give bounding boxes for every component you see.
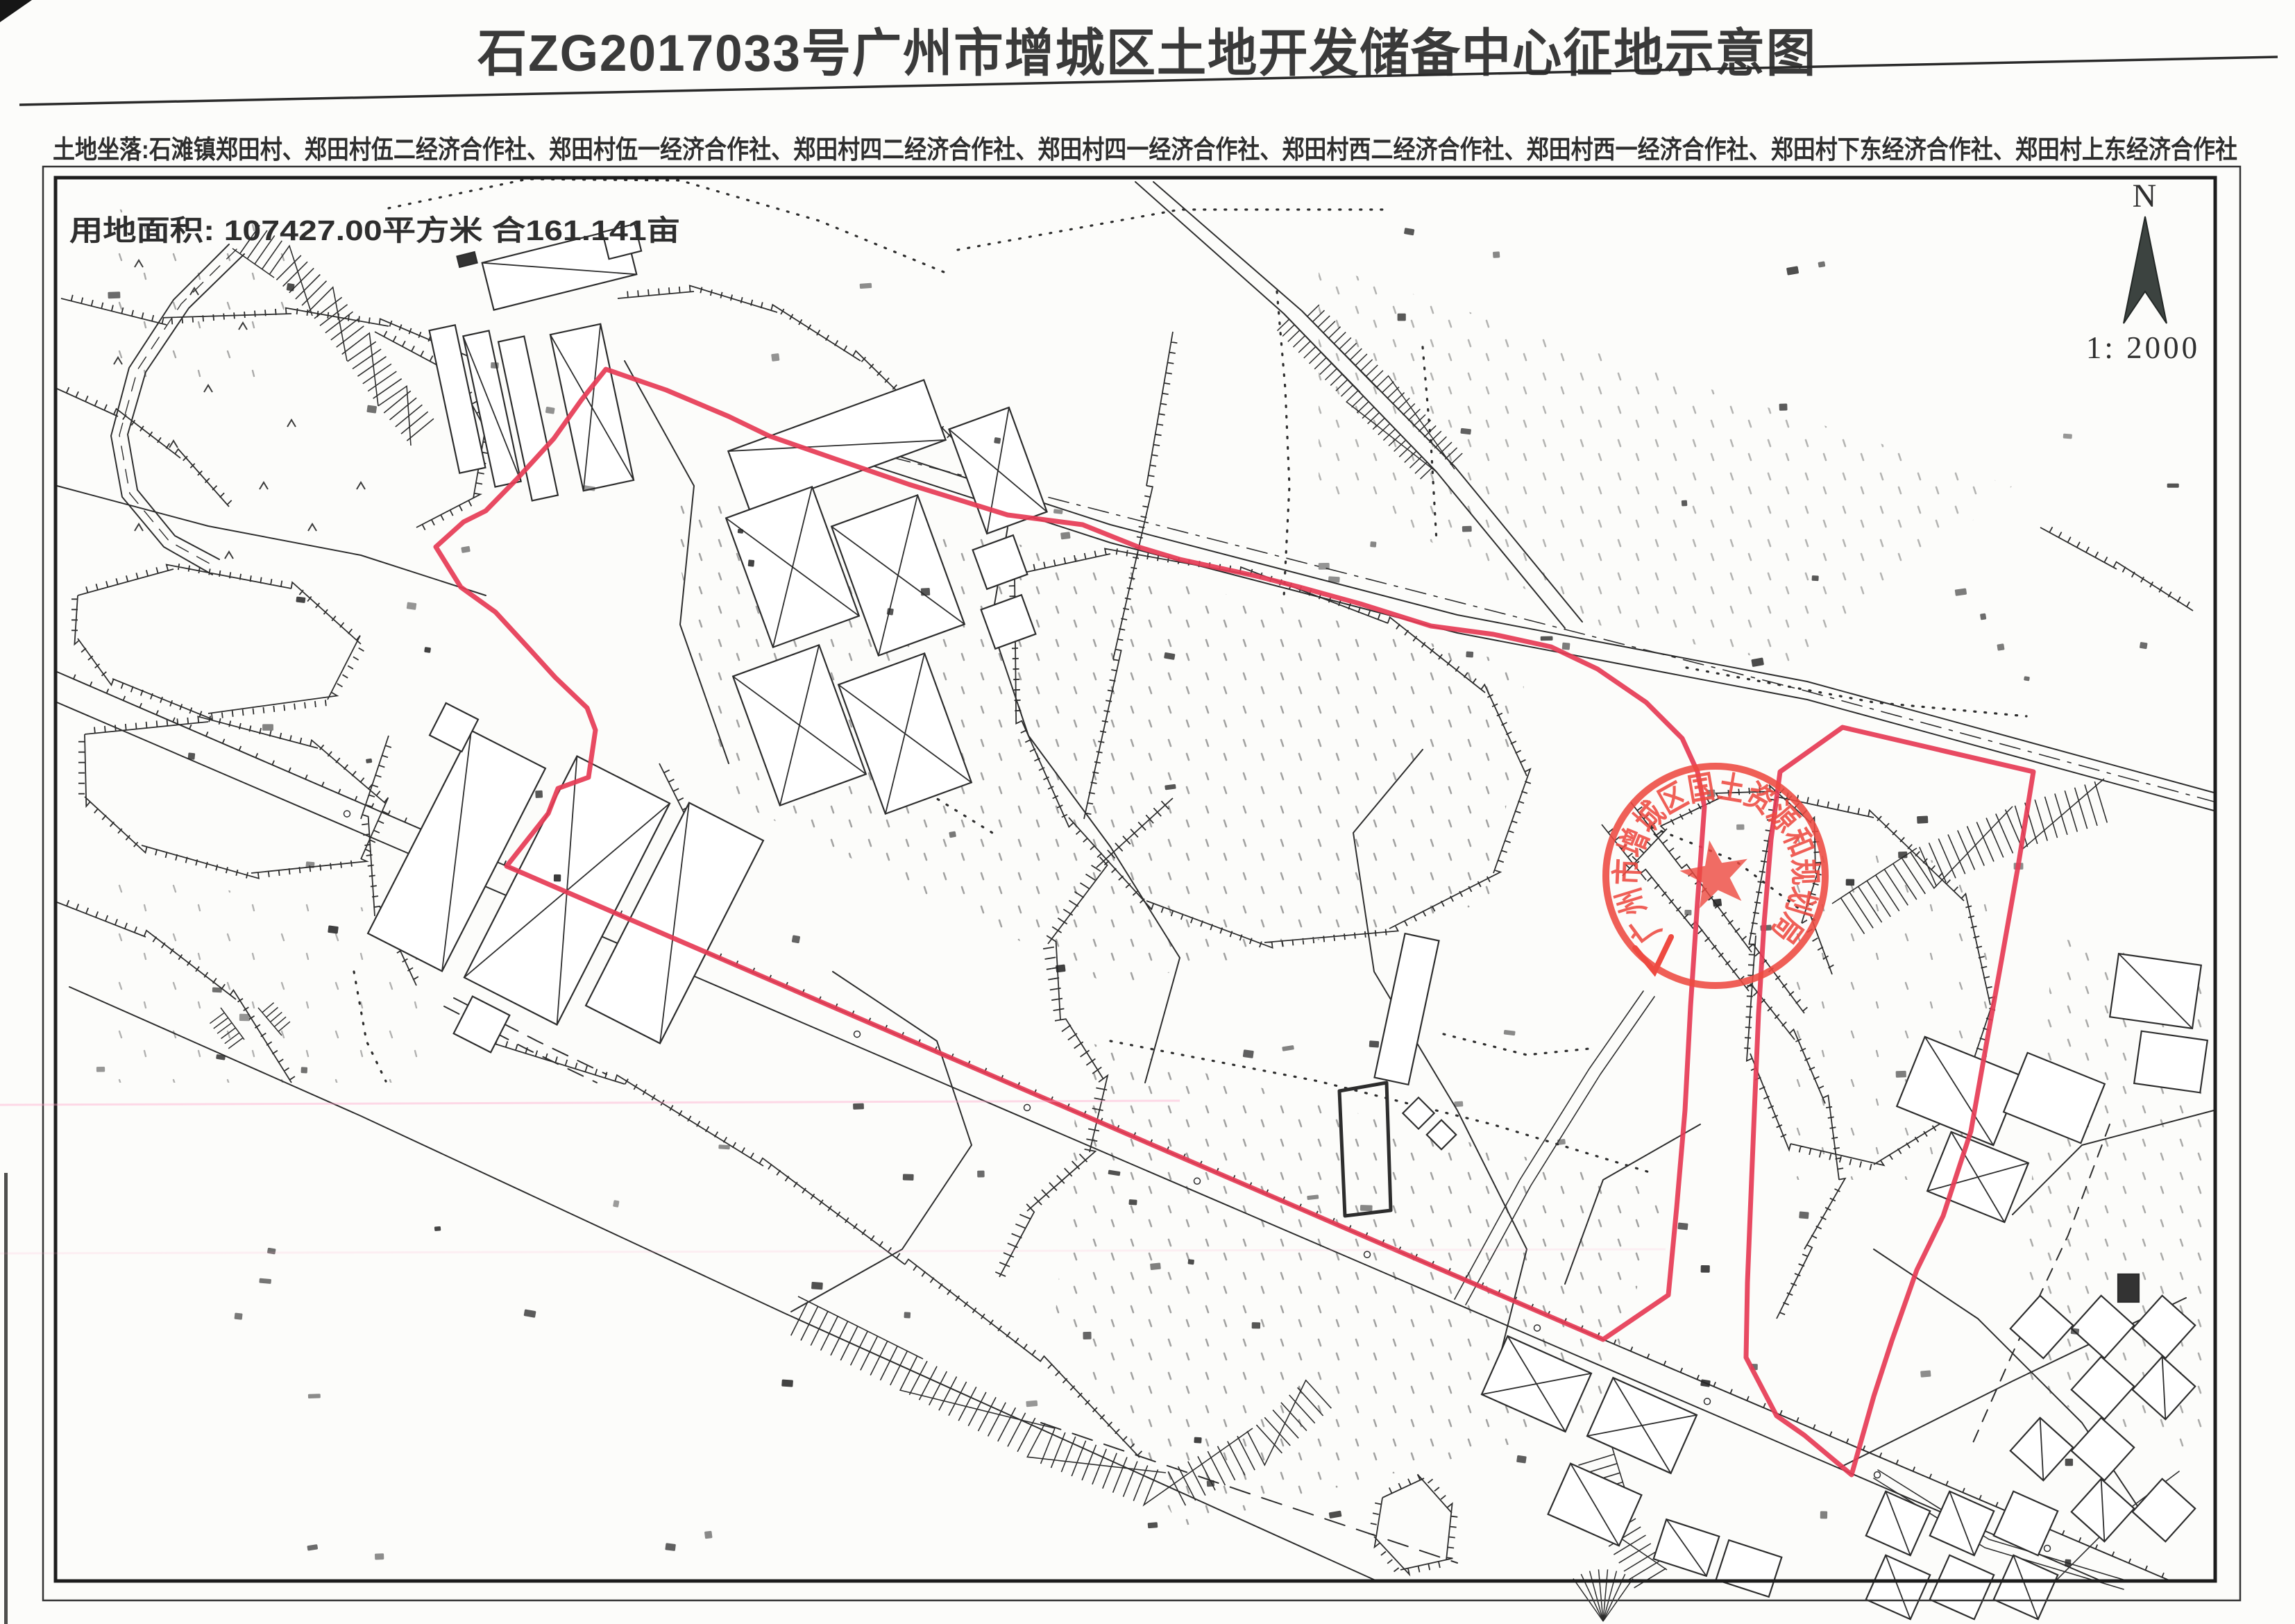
building-footprint [2110,954,2201,1029]
elevation-label-smudge [1466,651,1473,657]
elevation-label-smudge [1398,314,1406,321]
elevation-label-smudge [262,724,273,730]
elevation-label-smudge [1684,910,1691,915]
elevation-label-smudge [491,362,499,369]
elevation-label-smudge [903,1174,914,1181]
building-footprint [2072,1479,2134,1541]
building-footprint [550,324,634,491]
building-footprint [2133,1479,2195,1541]
elevation-label-smudge [1462,526,1472,532]
elevation-label-smudge [781,1380,793,1387]
elevation-label-smudge [949,831,956,838]
field-boundary [791,972,972,1312]
elevation-label-smudge [860,283,872,289]
corner-shadow [0,0,32,22]
elevation-label-smudge [1682,500,1688,507]
elevation-label-smudge [328,925,339,933]
elevation-label-smudge [1150,1262,1161,1270]
road-node [1024,1104,1031,1110]
building-footprint [1548,1464,1642,1546]
elevation-label-smudge [1026,1401,1038,1407]
elevation-label-smudge [1404,228,1415,235]
elevation-label-smudge [748,559,755,566]
embankment-line [57,387,232,507]
building-outline [2118,1274,2139,1302]
elevation-label-smudge [1779,403,1788,410]
north-label: N [2133,178,2157,214]
elevation-label-smudge [1493,251,1500,258]
building-outline [1716,1540,1782,1597]
pond-outline [1369,1474,1458,1574]
building-footprint [2118,1274,2139,1302]
building-footprint [2134,1031,2208,1093]
building-footprint [457,252,477,267]
pond-outline [78,716,388,879]
elevation-label-smudge [853,1103,864,1110]
road-node [344,811,350,817]
elevation-label-smudge [738,529,744,534]
elevation-label-smudge [977,1171,985,1178]
building-footprint [2072,1418,2134,1480]
elevation-label-smudge [1557,1139,1566,1145]
building-footprint [949,407,1047,534]
elevation-label-smudge [524,1309,536,1317]
elevation-label-smudge [308,1394,321,1398]
map-canvas: 广州市增城区国土资源和规划局 石ZG2017033号广州市增城区土地开发储备中心… [0,0,2295,1624]
elevation-label-smudge [613,1200,620,1208]
elevation-label-smudge [887,608,894,616]
scanned-land-acquisition-map: 广州市增城区国土资源和规划局 石ZG2017033号广州市增城区土地开发储备中心… [0,0,2295,1624]
elevation-label-smudge [1799,1211,1809,1219]
elevation-label-smudge [1541,636,1553,641]
elevation-label-smudge [1677,1222,1688,1230]
elevation-label-smudge [424,647,431,653]
elevation-label-smudge [1360,1205,1373,1211]
elevation-label-smudge [461,546,471,553]
scale-label: 1: 2000 [2086,330,2200,365]
elevation-label-smudge [771,353,779,362]
official-seal: 广州市增城区国土资源和规划局 [1606,766,1825,986]
building-footprint [2010,1418,2073,1480]
road-node [1194,1178,1201,1184]
elevation-label-smudge [1194,1437,1201,1444]
building-footprint [1866,1491,1930,1555]
elevation-label-smudge [434,1226,441,1231]
elevation-label-smudge [96,1067,105,1072]
elevation-label-smudge [1713,899,1722,907]
elevation-label-smudge [1997,643,2004,651]
grass-mark [357,482,365,489]
building-footprint [1994,1555,2058,1619]
elevation-label-smudge [718,1144,730,1149]
elevation-label-smudge [239,1014,250,1021]
grass-mark [169,441,178,448]
elevation-label-smudge [407,602,417,610]
elevation-label-smudge [665,1543,676,1551]
elevation-label-smudge [366,405,377,413]
elevation-label-smudge [2167,484,2179,488]
elevation-label-smudge [1454,1101,1463,1108]
page-edge-shadow [4,1173,8,1624]
land-area-label: 用地面积: 107427.00平方米 合161.141亩 [69,214,680,246]
building-footprint [1866,1555,1930,1619]
elevation-label-smudge [1955,588,1967,595]
elevation-label-smudge [1820,1511,1827,1519]
elevation-label-smudge [1369,1040,1380,1047]
building-outline [454,997,510,1053]
grass-mark [135,524,143,531]
elevation-label-smudge [1700,1379,1711,1387]
elevation-label-smudge [2024,676,2030,681]
elevation-label-smudge [1252,1322,1260,1328]
elevation-label-smudge [1504,1030,1516,1035]
road-node [1874,1472,1881,1478]
elevation-label-smudge [1243,1049,1254,1058]
elevation-label-smudge [108,291,120,298]
elevation-label-smudge [545,407,555,414]
elevation-label-smudge [1751,657,1764,667]
elevation-label-smudge [2063,434,2072,439]
elevation-label-smudge [1898,852,1907,858]
grass-mark [204,385,212,392]
elevation-label-smudge [921,588,931,595]
elevation-label-smudge [2065,1459,2073,1466]
pond-outline [71,564,364,719]
elevation-label-smudge [287,283,295,291]
elevation-label-smudge [994,437,1001,444]
elevation-label-smudge [1917,815,1928,823]
road-node [1704,1398,1711,1405]
elevation-label-smudge [212,987,222,992]
elevation-label-smudge [1056,964,1066,972]
elevation-label-smudge [1207,1480,1215,1487]
elevation-label-smudge [2140,642,2148,649]
elevation-label-smudge [1736,824,1744,830]
elevation-label-smudge [1060,532,1071,539]
building-outline [2134,1031,2208,1093]
elevation-label-smudge [300,1067,307,1073]
elevation-label-smudge [811,1282,823,1289]
road-node [2044,1545,2051,1551]
pink-scan-line [0,1101,1180,1105]
grass-mark [260,482,268,489]
building-footprint [1375,933,1439,1085]
elevation-label-smudge [1187,1259,1194,1264]
elevation-label-smudge [307,1544,318,1551]
building-outline [2072,1418,2134,1480]
elevation-label-smudge [1980,614,1986,620]
elevation-label-smudge [1083,1332,1091,1339]
elevation-label-smudge [554,874,561,881]
elevation-label-smudge [904,1312,911,1318]
elevation-label-smudge [296,596,305,603]
road-node [1534,1325,1541,1331]
elevation-label-smudge [1920,1370,1931,1377]
elevation-label-smudge [1812,575,1819,581]
elevation-label-smudge [704,1531,713,1539]
elevation-label-smudge [1128,1199,1137,1206]
elevation-label-smudge [1329,1510,1342,1519]
elevation-label-smudge [1328,576,1340,583]
grass-mark [308,524,316,531]
elevation-label-smudge [305,861,314,868]
elevation-label-smudge [1846,879,1855,886]
elevation-label-smudge [1282,1045,1294,1051]
elevation-label-smudge [1818,261,1825,267]
elevation-label-smudge [1319,563,1330,570]
elevation-label-smudge [1516,1455,1527,1464]
road-node [854,1031,861,1038]
building-outline [457,252,477,267]
elevation-label-smudge [1053,509,1063,514]
building-outline [1375,933,1439,1085]
north-arrow-icon [2124,217,2167,323]
header-block: 石ZG2017033号广州市增城区土地开发储备中心征地示意图 土地坐落:石滩镇郑… [19,24,2278,246]
grass-mark [225,552,233,559]
elevation-label-smudge [1370,541,1376,548]
elevation-label-smudge [1786,266,1799,276]
building-outline [1930,1555,1994,1619]
elevation-label-smudge [535,790,543,798]
elevation-label-smudge [792,935,801,943]
elevation-label-smudge [2065,1559,2071,1566]
building-footprint [454,997,510,1053]
elevation-label-smudge [366,759,372,763]
land-location-label: 土地坐落:石滩镇郑田村、郑田村伍二经济合作社、郑田村伍一经济合作社、郑田村四二经… [53,135,2237,164]
elevation-label-smudge [1701,1265,1710,1273]
elevation-label-smudge [1896,1071,1906,1078]
building-footprint [728,380,945,511]
elevation-label-smudge [259,1278,271,1284]
embankment-line [2040,527,2193,611]
building-footprint [1930,1555,1994,1619]
building-footprint [1716,1540,1782,1597]
elevation-label-smudge [188,752,196,759]
elevation-label-smudge [2071,1328,2080,1335]
page-title: 石ZG2017033号广州市增城区土地开发储备中心征地示意图 [477,24,1817,82]
elevation-label-smudge [375,1553,384,1559]
seal-star-icon [1680,840,1747,908]
north-arrow-block: N 1: 2000 [2086,178,2200,365]
elevation-label-smudge [1562,643,1570,650]
building-outline [2133,1479,2195,1541]
elevation-label-smudge [1148,1522,1158,1528]
road-node [1364,1251,1371,1258]
elevation-label-smudge [235,1312,243,1319]
grass-mark [287,420,296,427]
